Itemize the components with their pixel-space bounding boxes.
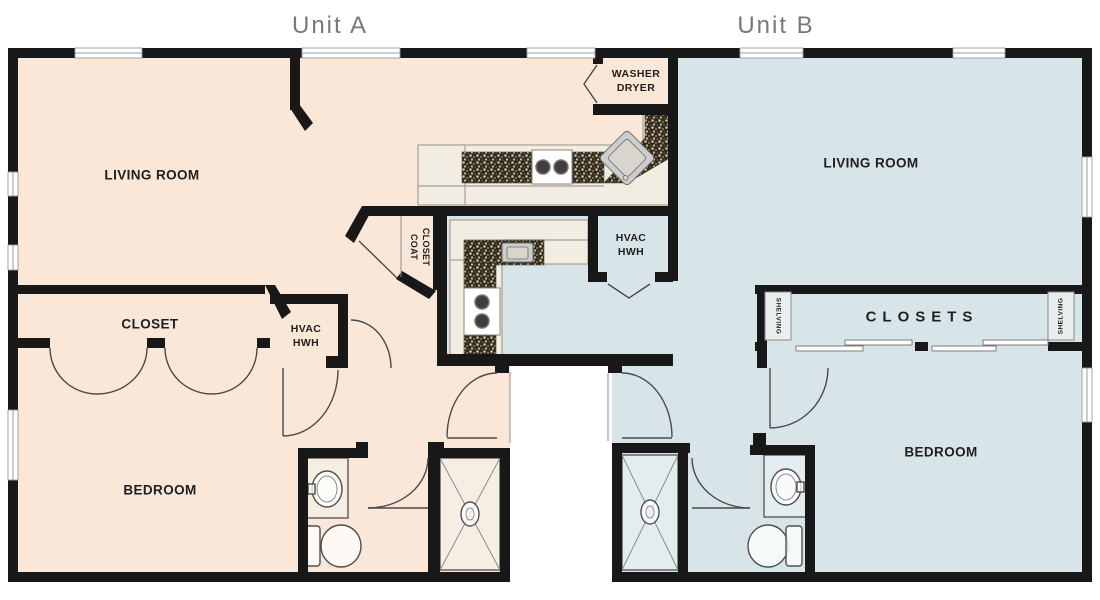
dryer-line: DRYER: [612, 82, 661, 96]
unit-b-stove: [464, 288, 500, 335]
coat-closet-line: CLOSET: [420, 228, 432, 266]
unit-a-faucet: [308, 484, 315, 494]
unit-b-hvac-label: HVAC HWH: [616, 232, 647, 260]
unit-a-toilet: [304, 525, 361, 567]
unit-a-stove: [532, 150, 572, 184]
unit-b-toilet: [748, 525, 802, 567]
unit-b-shower: [622, 455, 678, 570]
unit-b-hvac-line2: HWH: [616, 246, 647, 260]
unit-b-title: Unit B: [737, 12, 814, 40]
unit-b-living-room-label: LIVING ROOM: [823, 156, 918, 171]
floor-plan: Unit A Unit B LIVING ROOM CLOSET BEDROOM…: [0, 0, 1100, 600]
unit-b-shower-drain: [641, 500, 659, 524]
unit-a-shower-drain: [461, 502, 479, 526]
washer-dryer-label: WASHER DRYER: [612, 68, 661, 96]
unit-a-shower: [440, 458, 500, 570]
unit-b-sink: [502, 243, 533, 262]
unit-a-living-room-label: LIVING ROOM: [104, 168, 199, 183]
washer-line: WASHER: [612, 68, 661, 82]
unit-a-hvac-label: HVAC HWH: [291, 323, 322, 351]
unit-a-hvac-line2: HWH: [291, 337, 322, 351]
unit-b-shelving-right-label: SHELVING: [1058, 298, 1065, 335]
unit-a-hvac-line1: HVAC: [291, 323, 322, 337]
unit-a-bedroom-label: BEDROOM: [123, 483, 196, 498]
unit-b-faucet: [797, 482, 804, 492]
unit-a-coat-closet-label: COAT CLOSET: [408, 228, 432, 266]
coat-line: COAT: [408, 228, 420, 266]
unit-b-bedroom-label: BEDROOM: [904, 445, 977, 460]
unit-a-closet-label: CLOSET: [121, 317, 178, 332]
unit-b-hvac-line1: HVAC: [616, 232, 647, 246]
unit-a-title: Unit A: [292, 12, 368, 40]
floor-plan-canvas: [0, 0, 1100, 600]
unit-b-closets-label: CLOSETS: [860, 309, 979, 326]
unit-b-shelving-left-label: SHELVING: [775, 298, 782, 335]
